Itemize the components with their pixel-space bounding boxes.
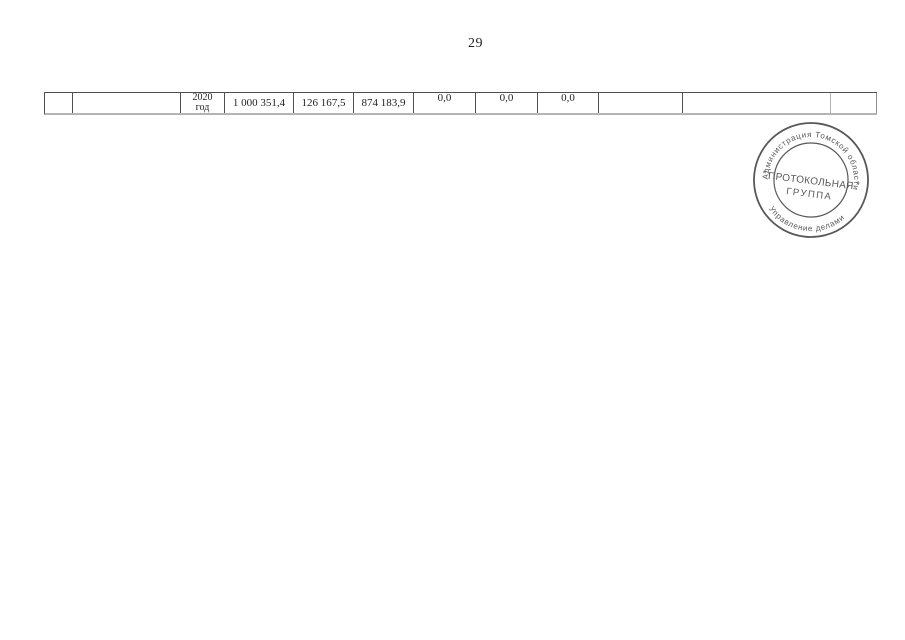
table-cell-amount-1: 126 167,5 xyxy=(294,93,354,113)
table-cell-zero-3: 0,0 xyxy=(538,93,599,113)
table-cell-amount-2: 874 183,9 xyxy=(354,93,414,113)
table-cell-empty-1 xyxy=(45,93,73,113)
official-stamp: Администрация Томской области Управление… xyxy=(736,105,886,255)
table-cell-amount-total: 1 000 351,4 xyxy=(225,93,294,113)
table-cell-year: 2020 год xyxy=(181,93,225,113)
table-cell-empty-3 xyxy=(599,93,683,113)
table-cell-zero-2: 0,0 xyxy=(476,93,538,113)
page-number: 29 xyxy=(468,36,483,52)
document-page: 29 2020 год 1 000 351,4 126 167,5 874 18… xyxy=(0,0,905,640)
table-cell-zero-1: 0,0 xyxy=(414,93,476,113)
table-cell-empty-2 xyxy=(73,93,181,113)
